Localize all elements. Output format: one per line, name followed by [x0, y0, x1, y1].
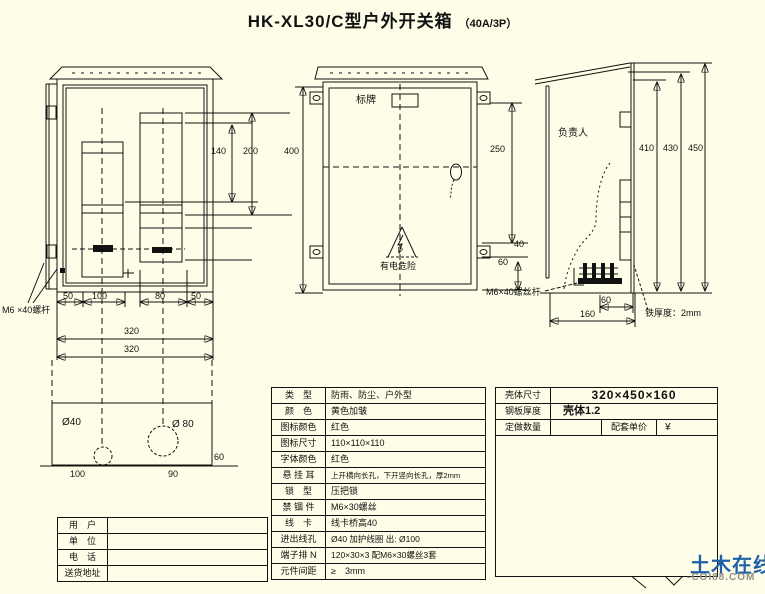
danger-label: 有电危险 — [380, 261, 416, 272]
spec-table: 类 型防雨、防尘、户外型 颜 色黄色加皱 图标颜色红色 图标尺寸110×110×… — [271, 387, 486, 580]
dim-label-140: 140 — [211, 146, 226, 157]
table-row: 线 卡线卡桥高40 — [272, 516, 485, 532]
table-row: 图标颜色红色 — [272, 420, 485, 436]
screw-icon — [313, 96, 320, 101]
dim-label-410: 410 — [638, 143, 655, 154]
hinge-top — [47, 106, 56, 119]
table-row: 禁 锢 件M6×30螺丝 — [272, 500, 485, 516]
table-row: 悬 挂 耳上开横向长孔，下开竖向长孔，厚2mm — [272, 468, 485, 484]
shell-size-label: 壳体尺寸 — [496, 388, 551, 403]
screw-icon — [480, 250, 487, 255]
shell-size-value: 320×450×160 — [551, 388, 717, 403]
front-bolt-label: M6 ×40螺杆 — [2, 305, 50, 316]
electric-danger-icon — [386, 227, 418, 257]
padlock-icon — [451, 164, 462, 180]
table-row: 壳体尺寸 320×450×160 — [496, 388, 717, 404]
watermark-site: -COI88.COM — [687, 572, 755, 583]
terminal-block — [574, 263, 622, 285]
hole-label-40: Ø40 — [62, 417, 81, 428]
dim-label-100: 100 — [92, 291, 107, 302]
company-field — [108, 534, 267, 549]
dim-label-50b: 50 — [191, 291, 201, 302]
address-field — [108, 566, 267, 581]
dim-label-320a: 320 — [124, 326, 139, 337]
table-row: 钢板厚度 壳体1.2 — [496, 404, 717, 420]
dim-label-60-side: 60 — [601, 295, 611, 306]
person-label: 负责人 — [558, 128, 588, 139]
model-name: HK-XL30/C型户外开关箱 — [248, 12, 453, 31]
steel-thickness-value: 壳体1.2 — [551, 404, 717, 419]
dim-label-250: 250 — [490, 144, 505, 155]
dim-label-200: 200 — [243, 146, 258, 157]
thickness-label: 铁厚度：2mm — [645, 308, 701, 319]
dim-label-60-mid: 60 — [498, 257, 508, 268]
table-row: 图标尺寸110×110×110 — [272, 436, 485, 452]
side-bolt-label: M6×40螺丝杆 — [486, 287, 541, 298]
dim-label-80: 80 — [155, 291, 165, 302]
nameplate — [392, 94, 418, 107]
table-row: 字体颜色红色 — [272, 452, 485, 468]
order-table: 壳体尺寸 320×450×160 钢板厚度 壳体1.2 定做数量 配套单价 ¥ — [495, 387, 718, 577]
table-row: 单 位 — [58, 534, 267, 550]
dim-label-plate-60: 60 — [214, 452, 224, 463]
table-row: 颜 色黄色加皱 — [272, 404, 485, 420]
order-qty-label: 定做数量 — [496, 420, 551, 435]
table-row: 元件间距≥ 3mm — [272, 564, 485, 580]
cable-hole-40 — [94, 447, 112, 465]
dim-label-160: 160 — [580, 309, 595, 320]
phone-field — [108, 550, 267, 565]
dim-label-50a: 50 — [63, 291, 73, 302]
cable-hole-80 — [148, 426, 178, 456]
steel-thickness-label: 钢板厚度 — [496, 404, 551, 419]
page-title: HK-XL30/C型户外开关箱（40A/3P） — [0, 7, 765, 32]
order-qty-value — [551, 420, 602, 435]
side-view-drawing — [535, 63, 712, 327]
screw-icon — [313, 250, 320, 255]
dim-label-400: 400 — [284, 146, 299, 157]
screw-icon — [480, 96, 487, 101]
unit-price-value: ¥ — [657, 420, 717, 435]
table-row: 电 话 — [58, 550, 267, 566]
rating-spec: （40A/3P） — [459, 18, 518, 30]
dim-label-plate-90: 90 — [168, 469, 178, 480]
front-view-drawing — [28, 67, 292, 447]
contact-table: 用 户 单 位 电 话 送货地址 — [57, 517, 268, 582]
base-plate-drawing — [40, 403, 238, 466]
hole-label-80: Ø 80 — [172, 419, 194, 430]
unit-price-label: 配套单价 — [602, 420, 657, 435]
customer-field — [108, 518, 267, 533]
nameplate-label: 标牌 — [356, 95, 376, 106]
table-row: 类 型防雨、防尘、户外型 — [272, 388, 485, 404]
breaker-symbol — [152, 247, 172, 253]
dim-label-450: 450 — [687, 143, 704, 154]
table-row: 锁 型压把锁 — [272, 484, 485, 500]
dim-label-plate-100: 100 — [70, 469, 85, 480]
table-row: 端子排 N120×30×3 配M6×30螺丝3套 — [272, 548, 485, 564]
table-row: 送货地址 — [58, 566, 267, 582]
hinge-bottom — [47, 245, 56, 258]
table-row: 用 户 — [58, 518, 267, 534]
table-row: 进出线孔Ø40 加护线圈 出: Ø100 — [272, 532, 485, 548]
dim-label-430: 430 — [662, 143, 679, 154]
dim-label-320b: 320 — [124, 344, 139, 355]
table-row: 定做数量 配套单价 ¥ — [496, 420, 717, 436]
dim-label-40: 40 — [514, 239, 524, 250]
drawing-sheet: HK-XL30/C型户外开关箱（40A/3P） M6 ×40螺杆 140 200… — [0, 0, 765, 594]
